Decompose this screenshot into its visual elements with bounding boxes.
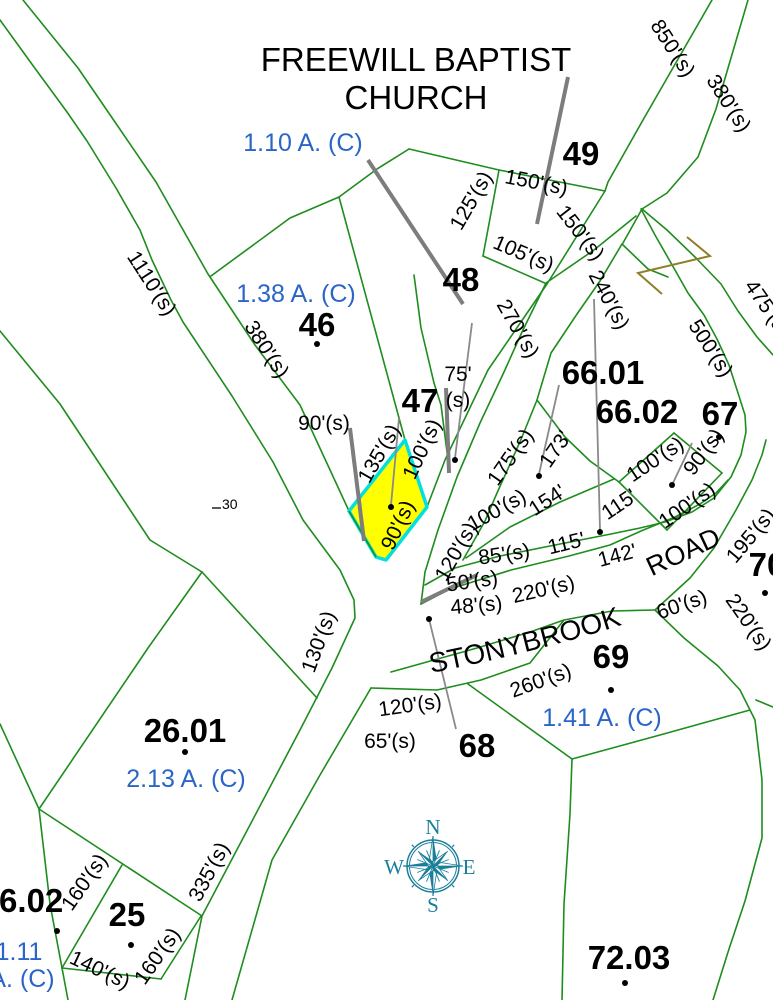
- svg-text:W: W: [384, 855, 404, 879]
- svg-text:47: 47: [402, 382, 439, 419]
- svg-text:30: 30: [222, 496, 238, 512]
- svg-text:48: 48: [443, 261, 480, 298]
- svg-text:CHURCH: CHURCH: [345, 79, 488, 116]
- svg-text:48'(s): 48'(s): [450, 592, 504, 619]
- svg-text:A. (C): A. (C): [0, 965, 55, 993]
- svg-text:26.02: 26.02: [0, 882, 63, 919]
- svg-text:67: 67: [702, 395, 739, 432]
- svg-text:69: 69: [593, 638, 630, 675]
- svg-text:25: 25: [109, 896, 146, 933]
- svg-text:1.38 A. (C): 1.38 A. (C): [236, 280, 356, 308]
- svg-text:66.01: 66.01: [562, 354, 645, 391]
- svg-text:FREEWILL BAPTIST: FREEWILL BAPTIST: [261, 41, 572, 78]
- svg-text:68: 68: [459, 727, 496, 764]
- svg-text:49: 49: [563, 135, 600, 172]
- svg-text:90'(s): 90'(s): [298, 412, 350, 435]
- svg-text:N: N: [425, 815, 440, 839]
- svg-text:2.13 A. (C): 2.13 A. (C): [126, 765, 246, 793]
- svg-text:1.41 A. (C): 1.41 A. (C): [542, 704, 662, 732]
- svg-text:75': 75': [444, 363, 471, 386]
- svg-text:(s): (s): [446, 389, 471, 412]
- svg-text:1.10 A. (C): 1.10 A. (C): [243, 129, 363, 157]
- svg-text:26.01: 26.01: [144, 712, 227, 749]
- svg-text:65'(s): 65'(s): [364, 730, 416, 753]
- svg-text:66.02: 66.02: [596, 393, 679, 430]
- svg-text:1.11: 1.11: [0, 938, 42, 966]
- svg-text:46: 46: [299, 306, 336, 343]
- svg-text:E: E: [463, 855, 476, 879]
- svg-text:72.03: 72.03: [588, 939, 671, 976]
- svg-text:S: S: [427, 893, 439, 917]
